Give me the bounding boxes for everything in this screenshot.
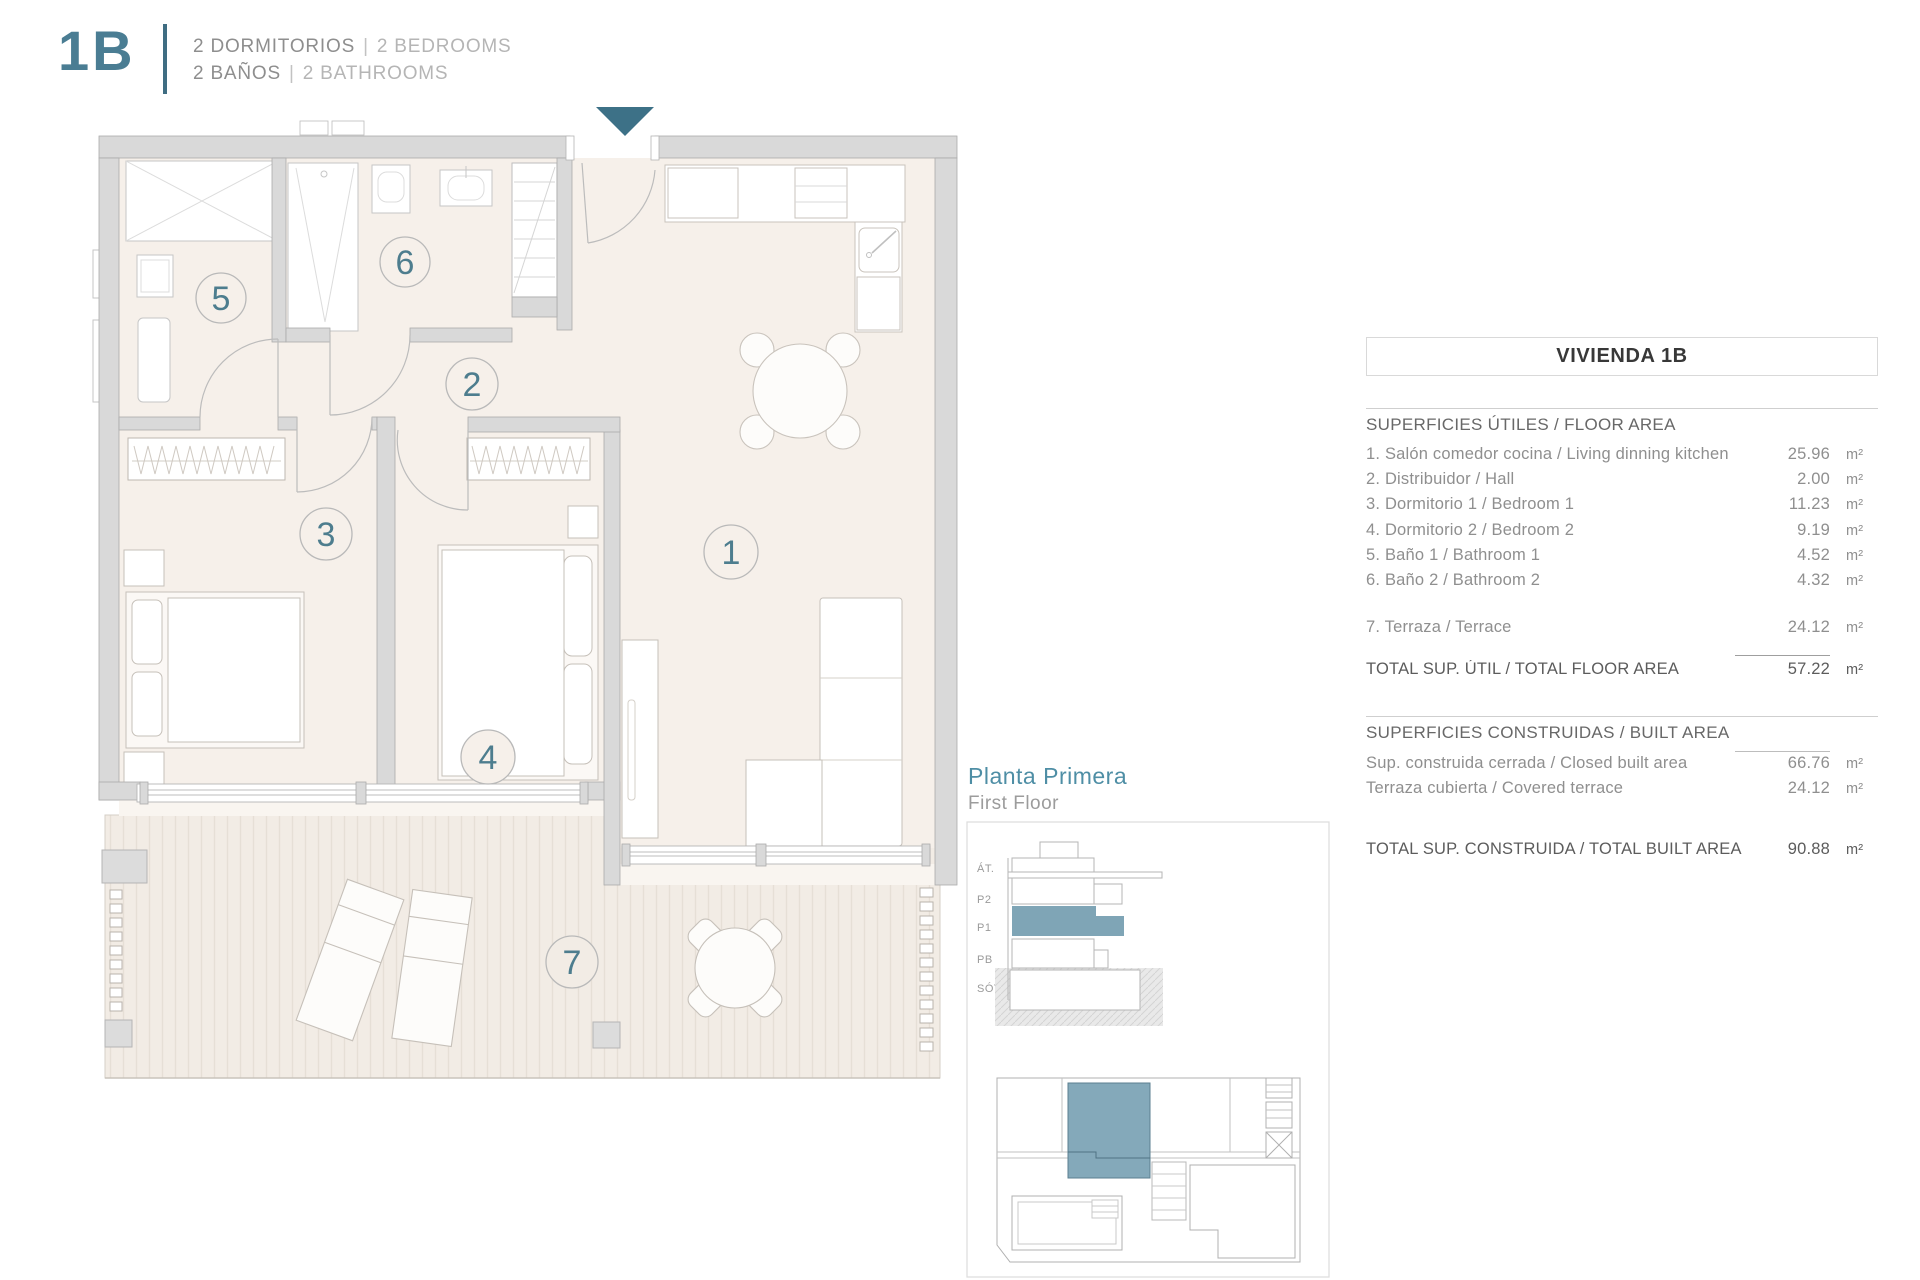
pillow-icon: [132, 600, 162, 664]
row-label: 4. Dormitorio 2 / Bedroom 2: [1366, 521, 1772, 540]
row-unit: m²: [1830, 620, 1878, 636]
floor-name-es: Planta Primera: [968, 763, 1127, 790]
row-label: 7. Terraza / Terrace: [1366, 618, 1772, 637]
areas-table: VIVIENDA 1B SUPERFICIES ÚTILES / FLOOR A…: [1366, 337, 1878, 865]
row-label: TOTAL SUP. ÚTIL / TOTAL FLOOR AREA: [1366, 660, 1772, 679]
built-rule: [1735, 751, 1830, 752]
shower-tray-icon: [288, 163, 358, 331]
sofa-icon: [820, 598, 902, 846]
pillow-icon: [564, 664, 592, 764]
closet-icon: [467, 438, 590, 480]
level-label-p1: P1: [977, 922, 991, 934]
linen-closet: [512, 163, 557, 297]
row-unit: m²: [1830, 497, 1878, 513]
room-label-bedroom2: 4: [461, 730, 515, 784]
row-value: 66.76: [1772, 754, 1830, 773]
highlighted-floor-p1: [1012, 906, 1096, 936]
pool-steps: [1092, 1200, 1118, 1218]
svg-text:2: 2: [463, 366, 482, 404]
level-label-pb: PB: [977, 954, 993, 966]
floor-area-section-header: SUPERFICIES ÚTILES / FLOOR AREA: [1366, 409, 1878, 441]
level-label-atico: ÁT.: [977, 862, 994, 875]
row-label: Sup. construida cerrada / Closed built a…: [1366, 754, 1772, 773]
floor-area-rows: 1. Salón comedor cocina / Living dinning…: [1366, 445, 1878, 596]
row-value: 57.22: [1772, 660, 1830, 679]
terrace-table-icon: [695, 928, 775, 1008]
chaise-icon: [746, 760, 822, 846]
row-value: 90.88: [1772, 840, 1830, 859]
total-rule: [1735, 655, 1830, 656]
table-row: 2. Distribuidor / Hall2.00m²: [1366, 470, 1878, 495]
built-area-section-header: SUPERFICIES CONSTRUIDAS / BUILT AREA: [1366, 717, 1878, 749]
row-value: 2.00: [1772, 470, 1830, 489]
row-label: TOTAL SUP. CONSTRUIDA / TOTAL BUILT AREA: [1366, 840, 1772, 859]
floorplan-sheet: 1B 2 DORMITORIOS|2 BEDROOMS 2 BAÑOS|2 BA…: [0, 0, 1920, 1280]
floor-name: Planta Primera First Floor: [968, 763, 1127, 815]
svg-text:4: 4: [479, 739, 498, 777]
built-area-rows: Sup. construida cerrada / Closed built a…: [1366, 754, 1878, 804]
entrance-arrow-icon: [596, 107, 654, 136]
sill-living: [620, 864, 935, 885]
row-value: 4.32: [1772, 571, 1830, 590]
row-unit: m²: [1830, 447, 1878, 463]
key-plan-diagram: [997, 1078, 1300, 1262]
row-label: 3. Dormitorio 1 / Bedroom 1: [1366, 495, 1772, 514]
stairs-icon: [1266, 1078, 1292, 1128]
level-label-p2: P2: [977, 894, 991, 906]
row-unit: m²: [1830, 662, 1878, 678]
highlighted-unit: [1068, 1083, 1150, 1178]
table-row: 4. Dormitorio 2 / Bedroom 29.19m²: [1366, 521, 1878, 546]
pillow-icon: [132, 672, 162, 736]
fridge-icon: [668, 168, 738, 218]
room-label-bath2: 6: [380, 237, 430, 287]
mattress: [168, 598, 300, 742]
room-label-bedroom1: 3: [300, 508, 352, 560]
room-label-terrace: 7: [546, 936, 598, 988]
room-label-hall: 2: [446, 358, 498, 410]
table-row: 6. Baño 2 / Bathroom 24.32m²: [1366, 571, 1878, 596]
floor-name-en: First Floor: [968, 793, 1127, 815]
svg-text:6: 6: [396, 244, 415, 282]
svg-text:3: 3: [317, 516, 336, 554]
room-label-living: 1: [704, 525, 758, 579]
row-value: 24.12: [1772, 618, 1830, 637]
row-unit: m²: [1830, 548, 1878, 564]
svg-text:5: 5: [212, 280, 231, 318]
row-label: 6. Baño 2 / Bathroom 2: [1366, 571, 1772, 590]
row-label: 2. Distribuidor / Hall: [1366, 470, 1772, 489]
row-label: 1. Salón comedor cocina / Living dinning…: [1366, 445, 1772, 464]
total-built-row: TOTAL SUP. CONSTRUIDA / TOTAL BUILT AREA…: [1366, 840, 1878, 865]
row-value: 24.12: [1772, 779, 1830, 798]
building-section-diagram: ÁT. P2 P1 PB SÓT.: [977, 842, 1163, 1026]
nightstand-icon: [124, 550, 164, 586]
tv-unit-icon: [622, 640, 658, 838]
table-row: 5. Baño 1 / Bathroom 14.52m²: [1366, 546, 1878, 571]
row-value: 9.19: [1772, 521, 1830, 540]
nightstand-icon: [568, 506, 598, 538]
row-unit: m²: [1830, 523, 1878, 539]
inner-stairs: [1152, 1162, 1186, 1220]
baluster-row-left: [110, 890, 122, 1011]
room-label-bath1: 5: [196, 273, 246, 323]
svg-text:1: 1: [722, 534, 741, 572]
pillow-icon: [564, 556, 592, 656]
total-floor-row: TOTAL SUP. ÚTIL / TOTAL FLOOR AREA57.22m…: [1366, 660, 1878, 685]
table-row: Sup. construida cerrada / Closed built a…: [1366, 754, 1878, 779]
svg-text:7: 7: [563, 944, 582, 982]
row-value: 11.23: [1772, 495, 1830, 514]
row-unit: m²: [1830, 472, 1878, 488]
dining-table-icon: [753, 344, 847, 438]
table-row-terrace: 7. Terraza / Terrace24.12m²: [1366, 618, 1878, 643]
table-row: Terraza cubierta / Covered terrace24.12m…: [1366, 779, 1878, 804]
row-unit: m²: [1830, 842, 1878, 858]
table-row: 3. Dormitorio 1 / Bedroom 111.23m²: [1366, 495, 1878, 520]
table-row: 1. Salón comedor cocina / Living dinning…: [1366, 445, 1878, 470]
row-value: 25.96: [1772, 445, 1830, 464]
oven-icon: [795, 168, 847, 218]
terrace-table-set: [684, 915, 785, 1020]
toilet-icon: [138, 318, 170, 402]
elevator-icon: [1266, 1132, 1292, 1158]
row-label: 5. Baño 1 / Bathroom 1: [1366, 546, 1772, 565]
dining-table-set: [740, 333, 860, 449]
row-label: Terraza cubierta / Covered terrace: [1366, 779, 1772, 798]
row-unit: m²: [1830, 781, 1878, 797]
highlighted-floor-p1-step: [1096, 916, 1124, 936]
row-value: 4.52: [1772, 546, 1830, 565]
table-title: VIVIENDA 1B: [1366, 337, 1878, 376]
row-unit: m²: [1830, 573, 1878, 589]
row-unit: m²: [1830, 756, 1878, 772]
